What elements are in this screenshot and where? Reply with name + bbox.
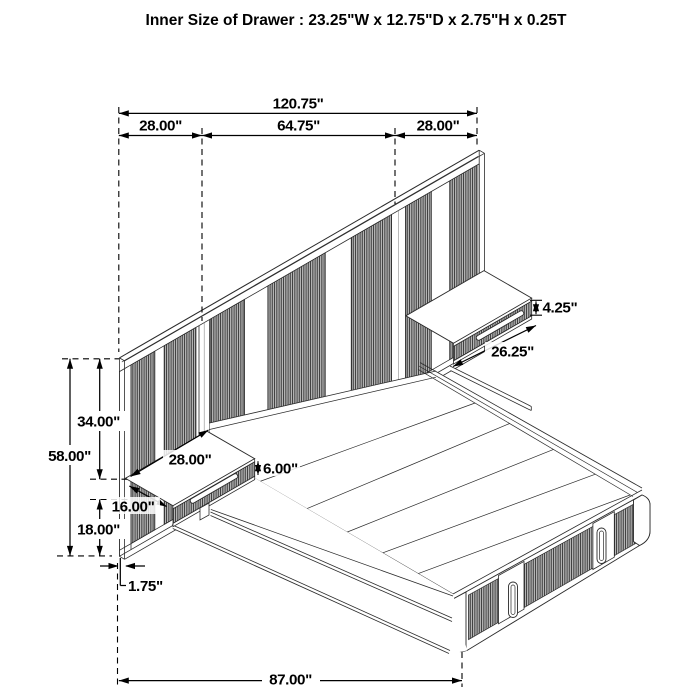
svg-text:34.00": 34.00" [77,414,120,431]
svg-text:120.75": 120.75" [273,96,324,113]
svg-text:58.00": 58.00" [48,448,91,465]
svg-text:18.00": 18.00" [77,522,120,539]
svg-text:28.00": 28.00" [139,118,182,135]
svg-text:4.25": 4.25" [543,300,578,317]
svg-text:64.75": 64.75" [277,118,320,135]
svg-text:28.00": 28.00" [417,118,460,135]
svg-text:28.00": 28.00" [169,452,212,469]
svg-text:87.00": 87.00" [269,672,312,689]
svg-text:Inner Size of Drawer : 23.25"W: Inner Size of Drawer : 23.25"W x 12.75"D… [146,12,567,29]
svg-text:1.75": 1.75" [128,578,163,595]
svg-text:26.25": 26.25" [491,344,534,361]
svg-text:16.00": 16.00" [112,499,155,516]
svg-text:6.00": 6.00" [263,461,298,478]
